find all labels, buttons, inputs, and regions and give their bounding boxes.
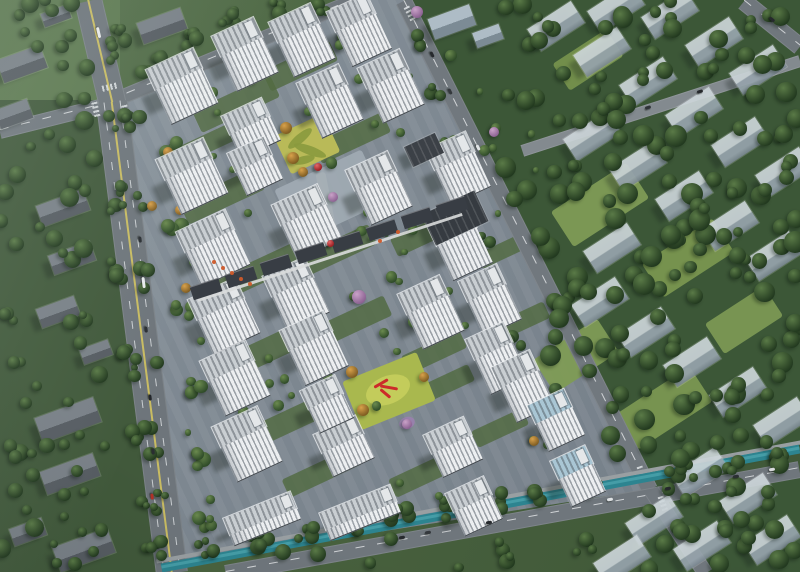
tree [744, 271, 756, 283]
tree [761, 388, 774, 401]
tree [784, 231, 800, 253]
tree [52, 558, 61, 567]
car [148, 395, 152, 401]
tree [128, 370, 140, 382]
tree [477, 88, 484, 95]
tree [115, 180, 126, 191]
tree [710, 435, 725, 450]
tree [357, 404, 369, 416]
tree [328, 192, 338, 202]
tree [207, 544, 220, 557]
tree [9, 237, 24, 252]
tree [549, 309, 568, 328]
tree [680, 493, 692, 505]
tree [531, 32, 548, 49]
tree [699, 203, 710, 214]
tree [580, 284, 596, 300]
red-sphere-sculpture [314, 163, 322, 171]
tree [704, 129, 717, 142]
tree [192, 448, 204, 460]
tree [650, 309, 666, 325]
tree [726, 486, 737, 497]
context-slab-building [137, 8, 188, 44]
tree [540, 345, 561, 366]
tree [733, 121, 747, 135]
tree [776, 82, 797, 103]
tree [58, 248, 68, 258]
orange-awning [212, 260, 217, 265]
tree [192, 511, 206, 525]
tree [143, 502, 150, 509]
tree [588, 545, 596, 553]
tree [109, 268, 124, 283]
roof-machine-room [252, 101, 265, 117]
tree [45, 4, 59, 18]
tree [529, 436, 539, 446]
tree [548, 329, 564, 345]
tree [435, 492, 443, 500]
tree [725, 407, 740, 422]
tree [660, 146, 674, 160]
red-sphere-sculpture [327, 240, 334, 247]
tree [326, 157, 338, 169]
orange-awning [239, 277, 244, 282]
tree [715, 48, 728, 61]
tree [613, 386, 630, 403]
roof-machine-room [576, 448, 589, 464]
tree [185, 429, 192, 436]
tree [786, 314, 800, 332]
tree [287, 152, 299, 164]
tree [506, 552, 514, 560]
tree [150, 356, 164, 370]
tree [506, 191, 522, 207]
tree [9, 166, 26, 183]
tree [574, 336, 594, 356]
tree [27, 449, 36, 458]
tree [613, 8, 633, 28]
tree [605, 208, 626, 229]
tree [78, 92, 90, 104]
tree [171, 300, 181, 310]
tree [517, 91, 536, 110]
roof-machine-room [325, 378, 338, 394]
roof-machine-room [346, 419, 359, 435]
roof-machine-room [430, 278, 444, 296]
tree [95, 523, 108, 536]
tree [542, 20, 555, 33]
tree [8, 356, 21, 369]
roof-machine-room [487, 267, 501, 285]
tree [762, 497, 775, 510]
tree [772, 369, 786, 383]
roof-machine-room [390, 52, 404, 70]
orange-awning [248, 282, 253, 287]
tree [547, 165, 562, 180]
tree [665, 125, 687, 147]
orange-awning [378, 239, 383, 244]
tree [573, 548, 582, 557]
tree [298, 167, 308, 177]
tree [733, 428, 749, 444]
tree [46, 230, 63, 247]
tree [352, 290, 366, 304]
tree [20, 397, 32, 409]
tree [556, 66, 571, 81]
tree [39, 438, 55, 454]
tree [26, 142, 35, 151]
tree [59, 439, 70, 450]
tree [56, 92, 72, 108]
tree [63, 397, 74, 408]
tree [78, 527, 88, 537]
tree [71, 465, 83, 477]
tree [161, 219, 175, 233]
tree [411, 6, 423, 18]
tree [639, 34, 650, 45]
tree [606, 401, 619, 414]
tree [22, 505, 32, 515]
tree [568, 160, 578, 170]
roof-machine-room [380, 487, 392, 501]
tree [346, 366, 358, 378]
tree [533, 167, 539, 173]
aerial-render-view [0, 0, 800, 572]
roof-machine-room [248, 409, 262, 427]
tree [428, 83, 436, 91]
tree [489, 144, 497, 152]
roof-machine-room [329, 67, 343, 85]
tree [365, 557, 376, 568]
tree [206, 515, 214, 523]
tree [516, 340, 527, 351]
tree [669, 269, 681, 281]
tree [689, 391, 702, 404]
tree [641, 246, 661, 266]
tree [55, 40, 68, 53]
tree [502, 89, 515, 102]
tree [567, 182, 585, 200]
tree [598, 20, 613, 35]
roof-machine-room [494, 325, 508, 343]
orange-awning [230, 271, 235, 276]
tree [611, 325, 629, 343]
tree [206, 495, 215, 504]
tree [402, 419, 412, 429]
tree [117, 24, 126, 33]
tree [783, 331, 800, 348]
tree [684, 261, 696, 273]
tree [665, 364, 684, 383]
tree [689, 473, 698, 482]
tree [454, 563, 464, 572]
tree [733, 227, 743, 237]
tree [189, 31, 204, 46]
tree [656, 62, 673, 79]
tree [760, 435, 773, 448]
tree [640, 351, 659, 370]
roof-machine-room [194, 141, 208, 159]
tree [441, 513, 451, 523]
tree [63, 314, 79, 330]
tree [498, 0, 514, 15]
tree [601, 426, 620, 445]
tree [752, 253, 767, 268]
tree [117, 345, 132, 360]
orange-awning [221, 266, 226, 271]
tree [771, 447, 783, 459]
tree [641, 386, 652, 397]
roof-machine-room [308, 187, 322, 205]
tree [107, 257, 116, 266]
tree [161, 492, 168, 499]
roof-machine-room [357, 0, 371, 14]
tree [719, 524, 733, 538]
tree [280, 122, 292, 134]
tree [57, 60, 69, 72]
tree [607, 110, 626, 129]
tree [727, 187, 739, 199]
tree [132, 110, 146, 124]
tree [150, 503, 158, 511]
car [138, 237, 142, 243]
tree [124, 121, 135, 132]
tree [265, 354, 273, 362]
tree [9, 450, 23, 464]
tree [310, 546, 326, 562]
tree [788, 269, 800, 284]
tree [59, 136, 76, 153]
roof-machine-room [216, 212, 230, 230]
tree [757, 131, 772, 146]
roof-machine-room [456, 135, 470, 153]
tree [528, 487, 541, 500]
tree [91, 366, 108, 383]
roof-machine-room [314, 314, 328, 332]
tree [495, 210, 502, 217]
tree [479, 145, 490, 156]
car [144, 327, 148, 333]
tree [218, 19, 226, 27]
tree [386, 271, 397, 282]
tree [650, 6, 662, 18]
tree [769, 550, 788, 569]
tree [761, 336, 777, 352]
tree [255, 539, 267, 551]
tree [716, 228, 733, 245]
tree [741, 531, 756, 546]
tree [746, 85, 765, 104]
tree [60, 188, 79, 207]
tree [130, 353, 142, 365]
tree [758, 183, 772, 197]
tree [371, 120, 379, 128]
tree [633, 273, 655, 295]
tree [694, 111, 707, 124]
tree [192, 461, 202, 471]
tree [765, 520, 784, 539]
tree [396, 479, 405, 488]
tree [68, 557, 82, 571]
tree [634, 409, 655, 430]
tree [214, 109, 221, 116]
tree [633, 125, 653, 145]
tree [79, 59, 96, 76]
roof-machine-room [520, 353, 534, 371]
roof-machine-room [244, 20, 258, 38]
orange-awning [396, 230, 401, 235]
roof-machine-room [301, 6, 315, 24]
tree [419, 372, 429, 382]
tree [710, 554, 729, 572]
tree [32, 381, 42, 391]
tree [613, 130, 628, 145]
tree [693, 243, 707, 257]
tree [709, 465, 721, 477]
tree [141, 263, 155, 277]
tree [495, 157, 516, 178]
tree [706, 172, 721, 187]
tree [26, 468, 40, 482]
tree [754, 282, 774, 302]
roof-machine-room [280, 494, 292, 508]
car [151, 449, 155, 455]
tree [708, 500, 721, 513]
tree [572, 113, 588, 129]
roof-machine-room [378, 154, 392, 172]
roof-machine-room [554, 392, 567, 408]
tree [489, 127, 499, 137]
tree [641, 560, 659, 572]
tree [642, 504, 656, 518]
tree [86, 150, 103, 167]
roof-machine-room [474, 479, 487, 495]
roof-machine-room [184, 51, 198, 69]
tree [710, 389, 723, 402]
roof-machine-room [454, 420, 467, 436]
tree [761, 485, 775, 499]
tree [288, 392, 295, 399]
tree [273, 400, 283, 410]
tree [64, 29, 77, 42]
tree [533, 12, 544, 23]
tree [401, 249, 407, 255]
tree [133, 191, 142, 200]
roof-machine-room [254, 140, 267, 156]
tree [773, 219, 789, 235]
roof-machine-room [236, 343, 250, 361]
tree [58, 488, 71, 501]
car [150, 494, 154, 500]
tree [745, 22, 757, 34]
tree [664, 466, 675, 477]
tree [147, 201, 157, 211]
tree [415, 41, 426, 52]
tree [495, 486, 508, 499]
tree [194, 380, 208, 394]
tree [553, 114, 566, 127]
tree [617, 183, 638, 204]
tree [675, 430, 687, 442]
tree [495, 537, 505, 547]
